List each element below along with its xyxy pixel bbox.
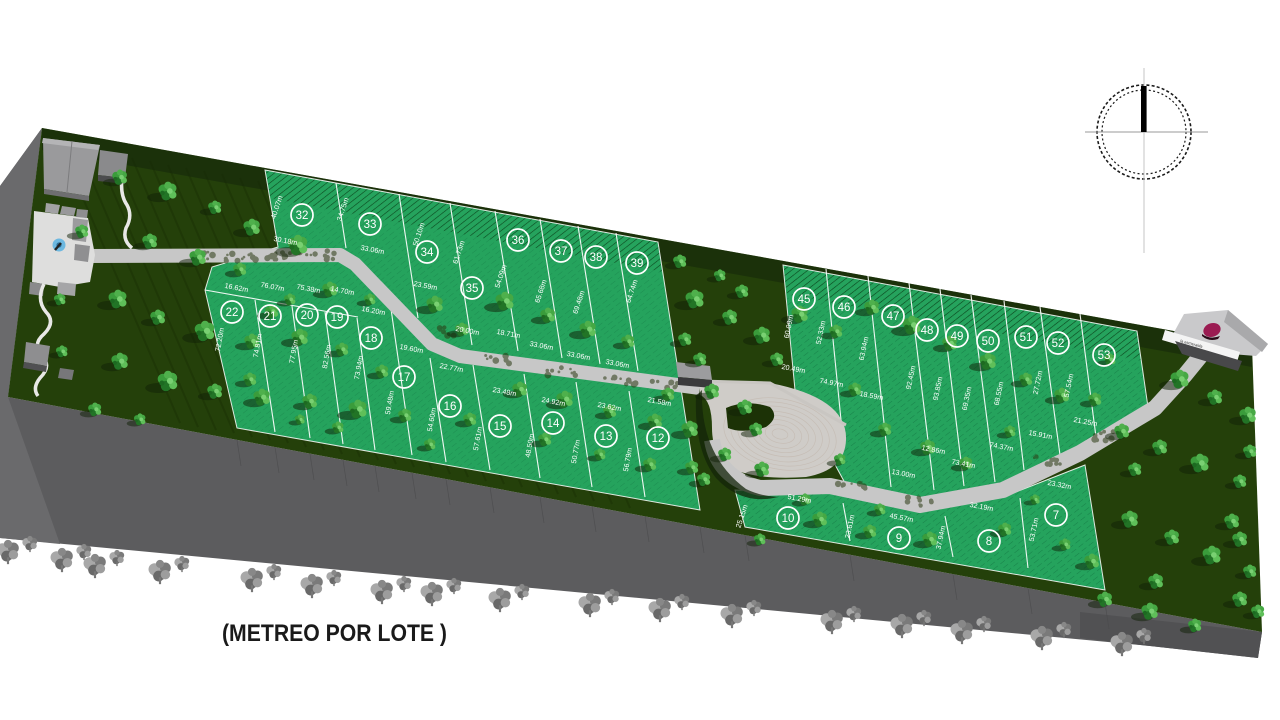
- svg-text:9: 9: [896, 533, 902, 545]
- svg-text:20: 20: [301, 310, 314, 322]
- svg-text:38: 38: [590, 252, 603, 264]
- svg-text:35: 35: [466, 283, 479, 295]
- svg-text:47: 47: [887, 311, 900, 323]
- svg-text:16: 16: [444, 401, 457, 413]
- svg-text:15: 15: [494, 421, 507, 433]
- svg-text:51: 51: [1020, 332, 1033, 344]
- svg-text:49: 49: [951, 331, 964, 343]
- svg-text:19: 19: [331, 312, 344, 324]
- svg-text:48: 48: [921, 325, 934, 337]
- svg-text:13: 13: [600, 431, 613, 443]
- svg-text:(METREO POR LOTE ): (METREO POR LOTE ): [222, 620, 447, 647]
- svg-text:53: 53: [1098, 350, 1111, 362]
- svg-text:12: 12: [652, 433, 665, 445]
- svg-text:22: 22: [226, 307, 239, 319]
- svg-text:18: 18: [365, 333, 378, 345]
- svg-text:21: 21: [264, 311, 277, 323]
- svg-text:14: 14: [547, 418, 560, 430]
- svg-text:46: 46: [838, 302, 851, 314]
- svg-text:50: 50: [982, 336, 995, 348]
- svg-text:34: 34: [421, 247, 434, 259]
- svg-text:33: 33: [364, 219, 377, 231]
- svg-text:37: 37: [555, 246, 568, 258]
- svg-text:39: 39: [631, 258, 644, 270]
- svg-text:32: 32: [296, 210, 309, 222]
- svg-text:7: 7: [1053, 510, 1059, 522]
- svg-text:10: 10: [782, 513, 795, 525]
- svg-text:17: 17: [398, 372, 411, 384]
- svg-text:8: 8: [986, 536, 992, 548]
- svg-text:52: 52: [1052, 338, 1065, 350]
- svg-text:36: 36: [512, 235, 525, 247]
- svg-text:45: 45: [798, 294, 811, 306]
